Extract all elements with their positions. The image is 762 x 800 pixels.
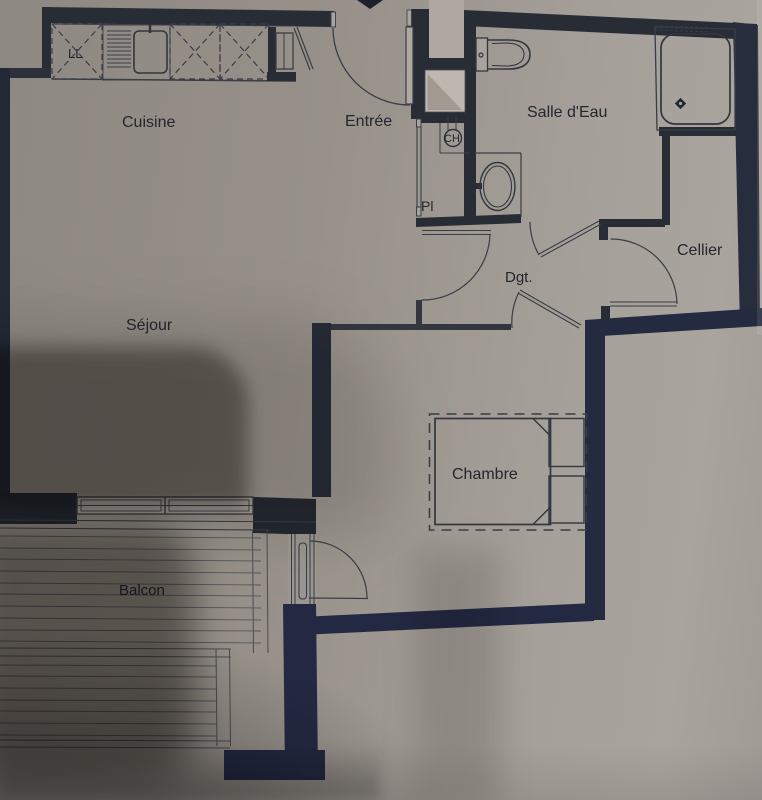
svg-text:Pl: Pl xyxy=(421,198,433,214)
svg-text:Dgt.: Dgt. xyxy=(505,269,533,286)
svg-text:Entrée: Entrée xyxy=(345,113,392,130)
svg-text:Salle d'Eau: Salle d'Eau xyxy=(527,104,607,121)
svg-text:Cellier: Cellier xyxy=(677,242,723,259)
svg-text:LL: LL xyxy=(68,46,82,61)
svg-text:CH: CH xyxy=(444,133,460,145)
svg-text:Cuisine: Cuisine xyxy=(122,114,175,131)
svg-text:Chambre: Chambre xyxy=(452,466,518,483)
